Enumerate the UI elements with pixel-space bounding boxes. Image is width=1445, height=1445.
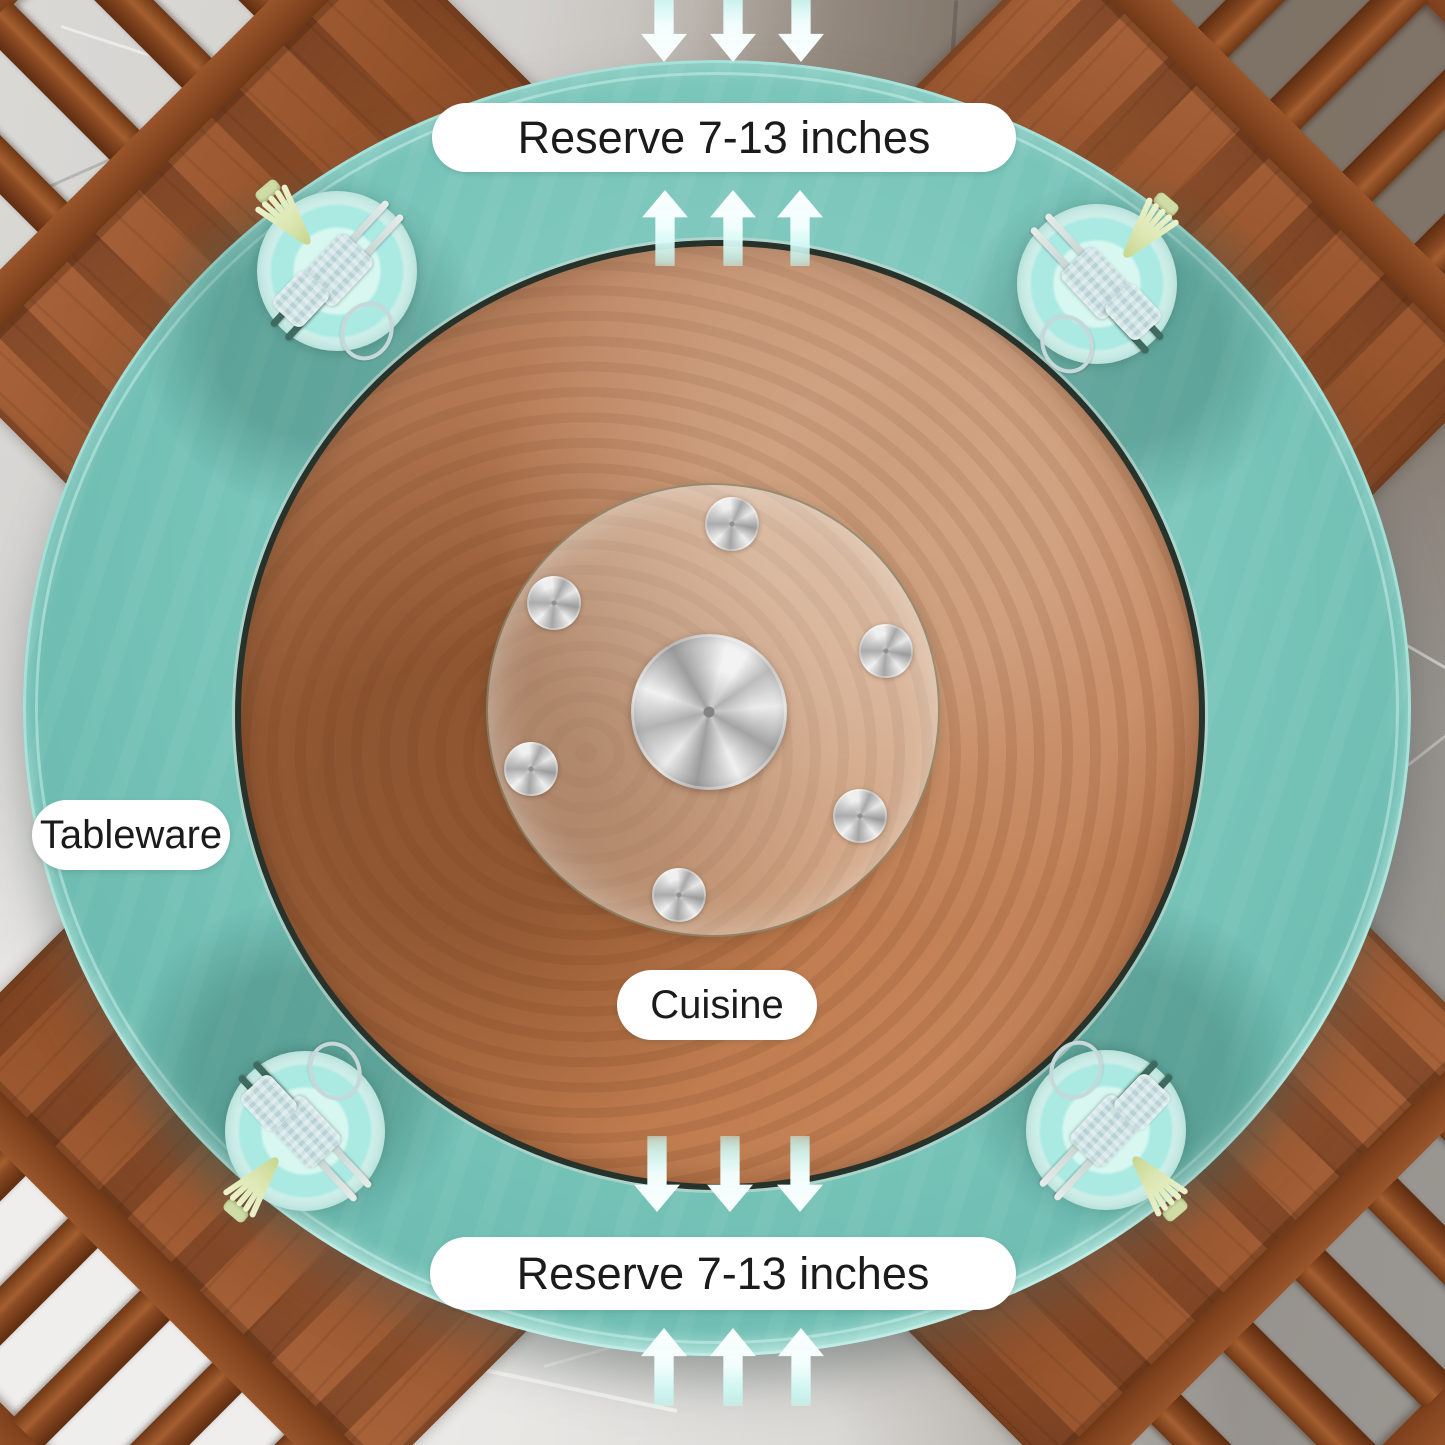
reserve-bottom-label-text: Reserve 7-13 inches xyxy=(517,1248,930,1300)
bearing-screw-disc xyxy=(652,868,706,922)
bearing-screw-disc xyxy=(705,497,759,551)
bearing-screw-disc xyxy=(527,576,581,630)
bearing-screw-disc xyxy=(504,742,558,796)
place-setting-bottom-left xyxy=(217,1043,393,1219)
scene-annotated-product: Reserve 7-13 inches Reserve 7-13 inches … xyxy=(0,0,1445,1445)
cuisine-label: Cuisine xyxy=(617,970,817,1040)
tableware-label-text: Tableware xyxy=(40,813,222,858)
bearing-screw-disc xyxy=(859,624,913,678)
swivel-bearing xyxy=(631,634,787,790)
cuisine-label-text: Cuisine xyxy=(650,983,783,1028)
tableware-label: Tableware xyxy=(32,800,230,870)
bearing-screw-disc xyxy=(833,789,887,843)
chair-slat xyxy=(11,1288,172,1445)
place-setting-top-right xyxy=(1009,196,1185,372)
reserve-bottom-label: Reserve 7-13 inches xyxy=(430,1237,1016,1310)
place-setting-bottom-right xyxy=(1018,1042,1194,1218)
reserve-top-label-text: Reserve 7-13 inches xyxy=(518,112,931,164)
reserve-top-label: Reserve 7-13 inches xyxy=(432,103,1016,172)
place-setting-top-left xyxy=(249,183,425,359)
